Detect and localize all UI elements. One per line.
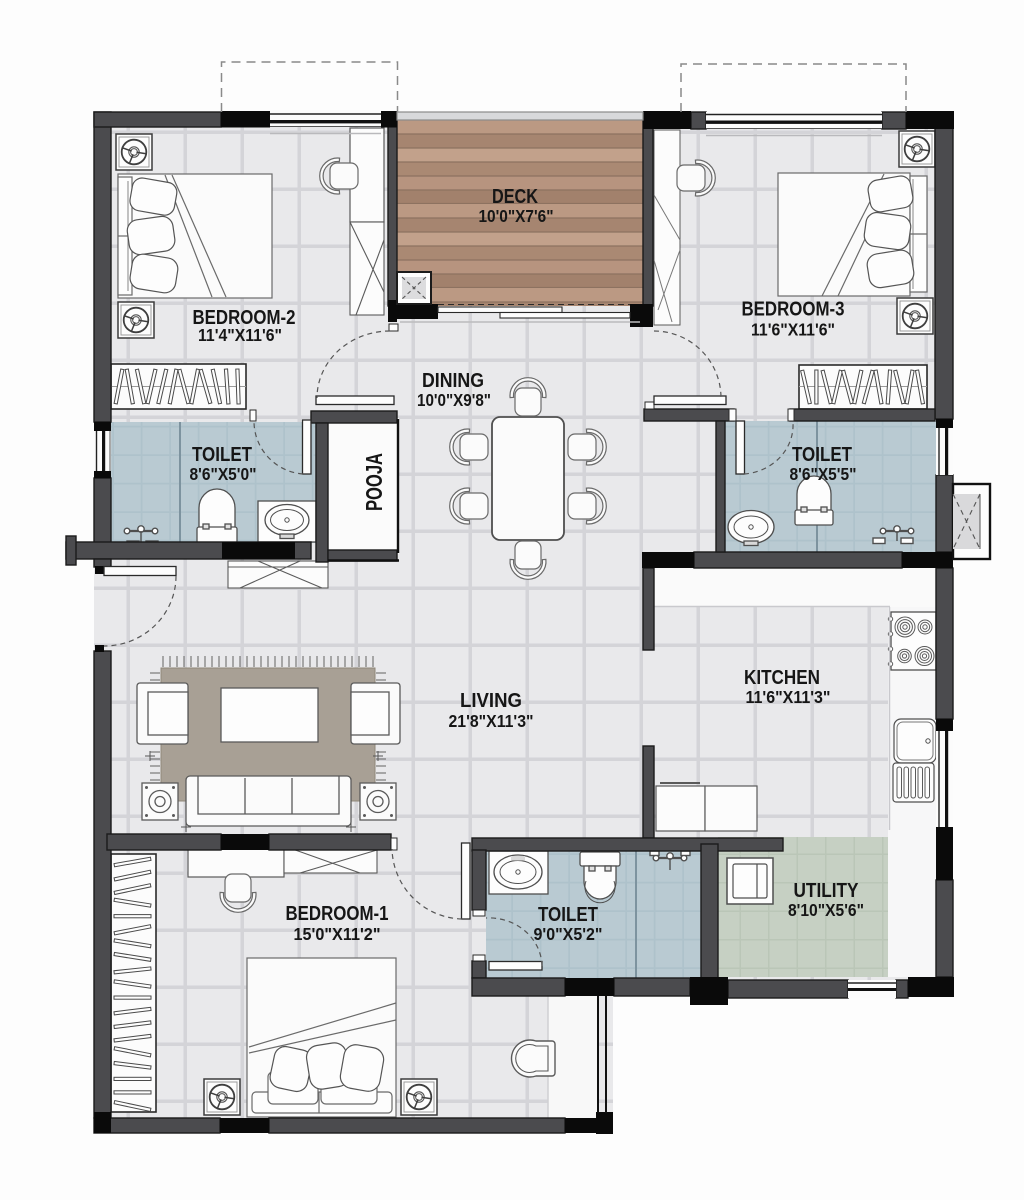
svg-text:10'0"X7'6": 10'0"X7'6" <box>479 206 554 226</box>
svg-text:TOILET: TOILET <box>538 904 598 926</box>
svg-text:10'0"X9'8": 10'0"X9'8" <box>417 390 491 410</box>
svg-text:KITCHEN: KITCHEN <box>744 667 820 689</box>
svg-text:11'6"X11'3": 11'6"X11'3" <box>746 687 831 707</box>
svg-text:15'0"X11'2": 15'0"X11'2" <box>294 924 381 944</box>
svg-text:TOILET: TOILET <box>192 444 252 466</box>
svg-text:TOILET: TOILET <box>792 444 852 466</box>
svg-text:DINING: DINING <box>422 370 484 392</box>
svg-text:8'6"X5'5": 8'6"X5'5" <box>790 464 857 484</box>
svg-text:9'0"X5'2": 9'0"X5'2" <box>534 924 603 944</box>
svg-text:BEDROOM-1: BEDROOM-1 <box>286 903 389 925</box>
svg-text:21'8"X11'3": 21'8"X11'3" <box>449 711 534 731</box>
svg-text:LIVING: LIVING <box>460 690 522 712</box>
svg-text:BEDROOM-3: BEDROOM-3 <box>742 299 845 321</box>
svg-text:11'4"X11'6": 11'4"X11'6" <box>198 325 282 345</box>
svg-text:DECK: DECK <box>492 186 538 208</box>
svg-text:8'10"X5'6": 8'10"X5'6" <box>788 900 864 920</box>
svg-text:11'6"X11'6": 11'6"X11'6" <box>751 320 835 340</box>
svg-text:UTILITY: UTILITY <box>794 880 860 902</box>
svg-text:8'6"X5'0": 8'6"X5'0" <box>190 464 257 484</box>
svg-text:POOJA: POOJA <box>361 453 387 511</box>
